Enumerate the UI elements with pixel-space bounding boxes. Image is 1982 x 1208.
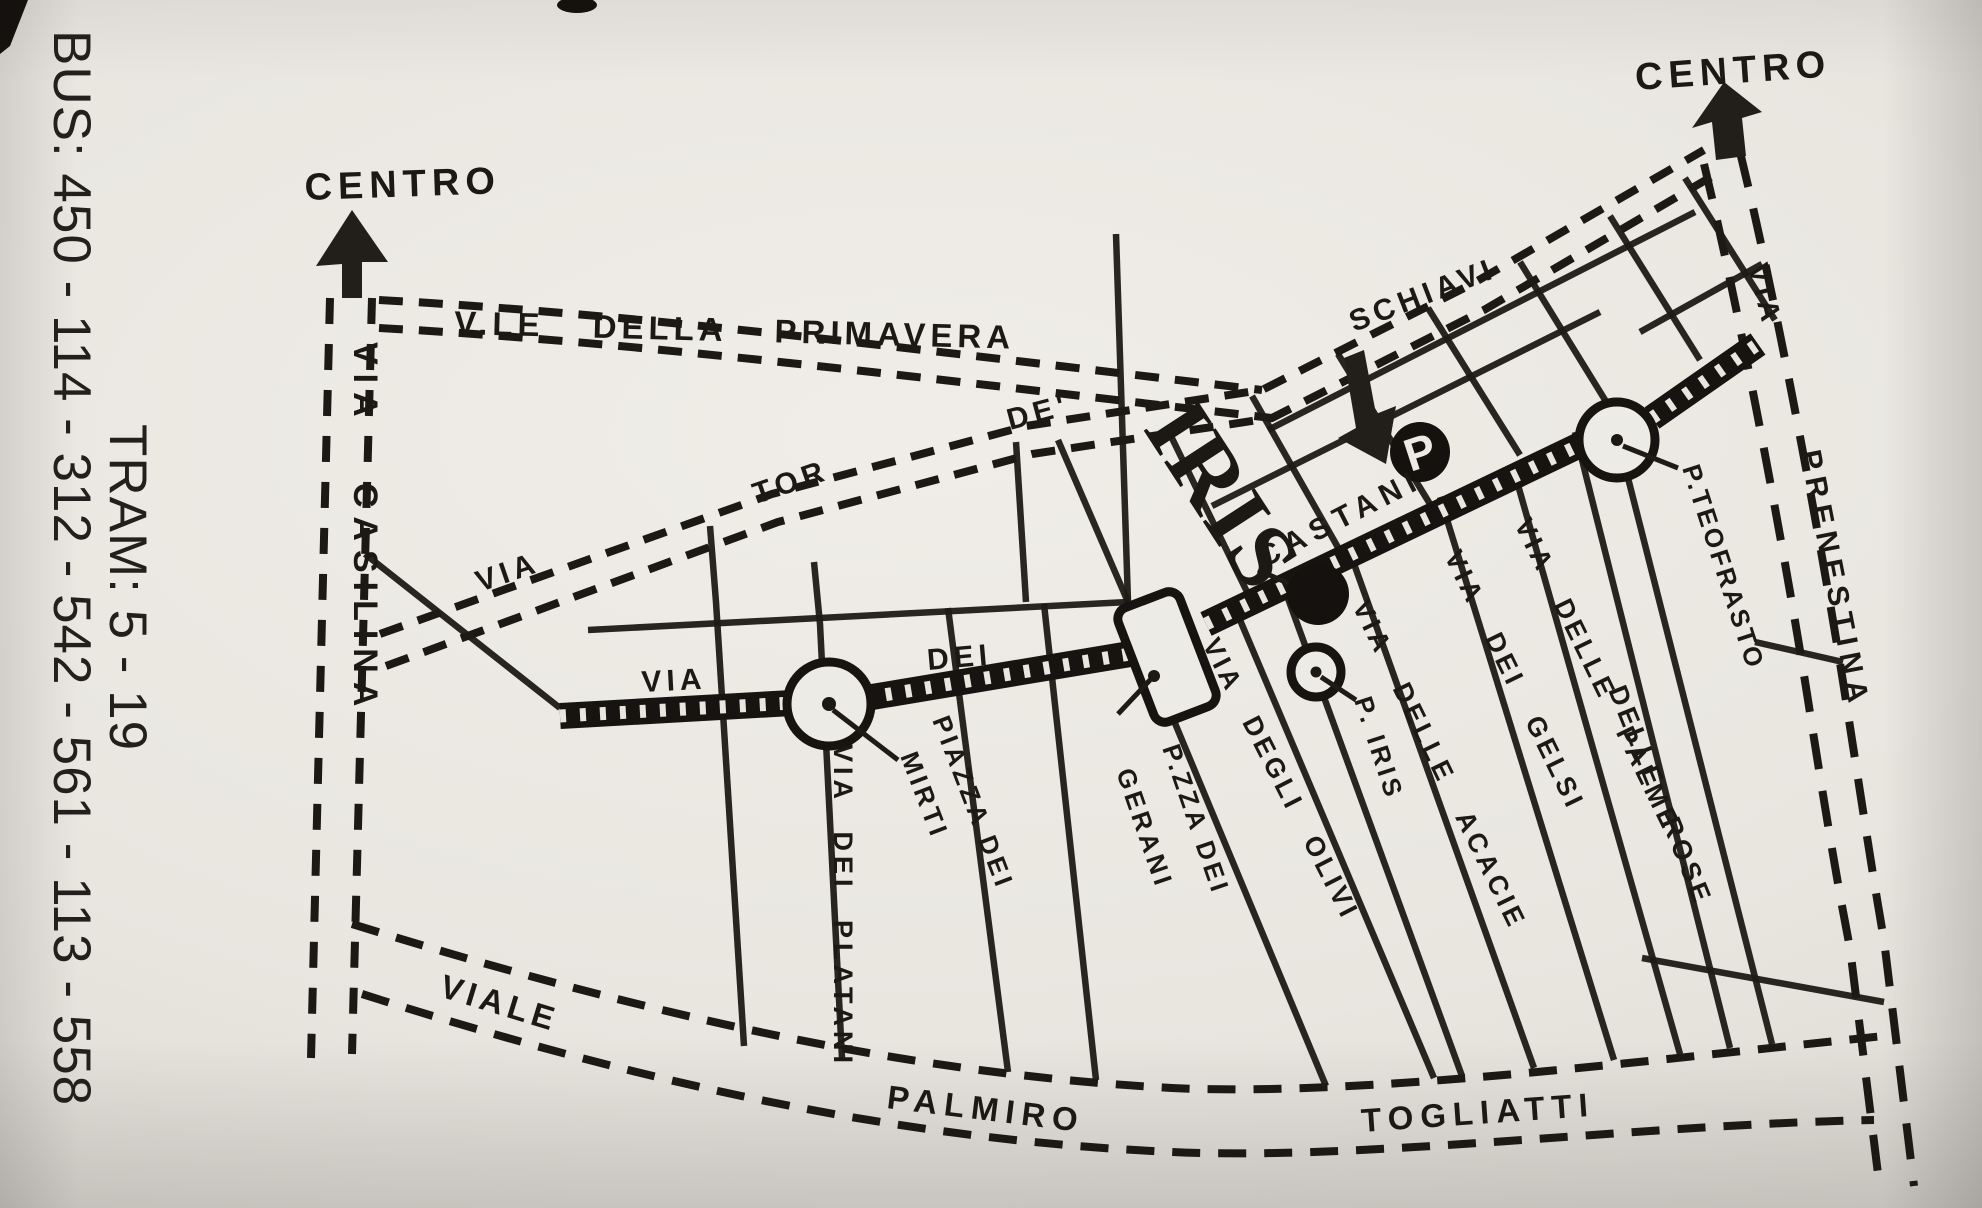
teofrasto-dot [1611,434,1623,446]
togliatti-name: TOGLIATTI [1360,1086,1596,1139]
road-togliatti-north [352,924,1884,1089]
centro-left-label: CENTRO [304,160,502,209]
street-stub-2 [1016,442,1026,602]
road-togliatti-south [362,994,1874,1153]
tram-band-a [560,703,792,716]
rose-label: DELLE ROSE [1602,681,1718,910]
tram-lines-label: TRAM: 5 - 19 [98,424,157,751]
street-grid-n7 [1610,216,1700,360]
street-vertical-1 [710,526,744,1046]
road-casilina-west [311,298,330,1058]
iris-square-dot [1311,667,1322,678]
street-vertical-long [1116,234,1128,602]
teofrasto-label: P.TEOFRASTO [1676,461,1771,674]
prenestina-via: VIA [1741,260,1787,329]
street-diagonal-stub [1058,440,1128,602]
tor-de-schiavi-de: DE' [1003,388,1073,436]
road-tor-de-schiavi-north [380,150,1704,634]
castani-via: VIA [641,663,708,699]
casilina-label: VIA CASILINA [346,342,384,715]
iris-venue-dot [1287,563,1349,625]
street-cross-bottom-right [1642,958,1884,1002]
platani-label: VIA DEI PLATANI [828,744,858,1068]
centro-left-arrow-icon [316,210,388,298]
street-grid-n6 [1520,262,1610,408]
corner-smudge [0,0,28,54]
edge-smudge [557,0,597,13]
map-svg: BUS: 450 - 114 - 312 - 542 - 561 - 113 -… [0,0,1982,1208]
tor-de-schiavi-tor: TOR [749,454,833,511]
centro-right-label: CENTRO [1634,43,1833,99]
primavera-label: V.LE DELLA PRIMAVERA [454,304,1016,356]
bus-lines-label: BUS: 450 - 114 - 312 - 542 - 561 - 113 -… [42,30,101,1106]
castani-dei: DEI [926,638,994,677]
prenestina-name: PRENESTINA [1793,447,1876,712]
iris-location-flyer: BUS: 450 - 114 - 312 - 542 - 561 - 113 -… [0,0,1982,1208]
transit-info: BUS: 450 - 114 - 312 - 542 - 561 - 113 -… [42,30,157,1106]
